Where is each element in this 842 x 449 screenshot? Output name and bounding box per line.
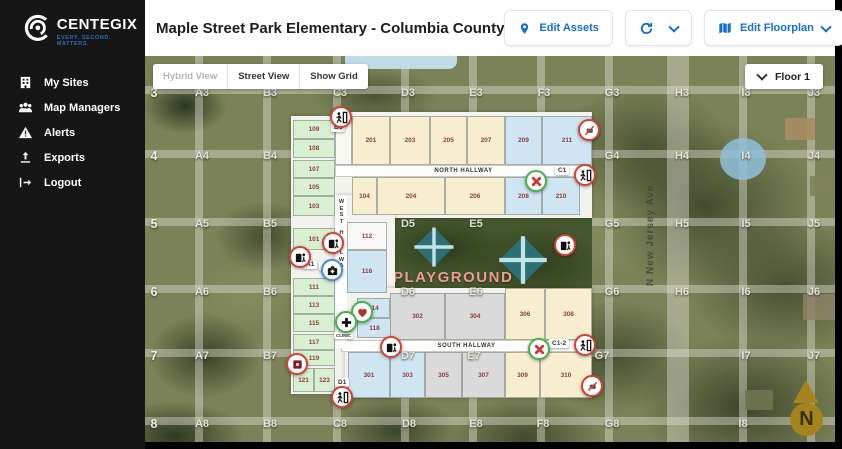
fire-alarm-icon <box>291 358 304 371</box>
room-number: 302 <box>412 313 423 320</box>
no-access-marker[interactable] <box>581 375 603 397</box>
room-number: 117 <box>309 339 320 346</box>
sidebar-item-label: Exports <box>44 152 85 164</box>
exit-run-icon <box>335 111 348 124</box>
room-301[interactable]: 301 <box>348 352 390 398</box>
room-number: 108 <box>309 145 320 152</box>
sidebar-item-alerts[interactable]: Alerts <box>16 120 139 145</box>
room-number: 206 <box>470 193 481 200</box>
chevron-down-icon <box>756 69 767 80</box>
west-hallway-letter: E <box>340 206 344 213</box>
room-210[interactable]: 210 <box>542 177 580 215</box>
centegix-spiral-icon <box>22 12 54 44</box>
show-grid-button[interactable]: Show Grid <box>299 64 368 89</box>
room-number: 115 <box>309 320 320 327</box>
room-105[interactable]: 105 <box>293 178 335 196</box>
room-number: 107 <box>309 166 320 173</box>
edit-assets-label: Edit Assets <box>539 22 599 34</box>
room-number: 104 <box>359 193 370 200</box>
logo-title: CENTEGIX <box>57 16 145 33</box>
west-hallway-letter: S <box>340 212 344 219</box>
room-number: 305 <box>438 372 449 379</box>
no-access-icon <box>586 380 599 393</box>
room-209[interactable]: 209 <box>505 116 542 165</box>
room-number: 301 <box>364 372 375 379</box>
label-chip-C1: C1 <box>555 166 569 175</box>
sidebar-item-logout[interactable]: Logout <box>16 170 139 195</box>
floor-select-dropdown[interactable]: Floor 1 <box>745 64 823 89</box>
topbar: Maple Street Park Elementary - Columbia … <box>145 0 835 56</box>
house-roof <box>810 176 835 196</box>
page-title: Maple Street Park Elementary - Columbia … <box>156 20 504 37</box>
exit-run-marker[interactable] <box>330 106 352 128</box>
room-115[interactable]: 115 <box>293 314 335 332</box>
room-number: 109 <box>309 126 320 133</box>
north-hallway-label: NORTH HALLWAY <box>434 168 492 174</box>
sidebar-item-map-managers[interactable]: Map Managers <box>16 95 139 120</box>
compass-north-label: N <box>799 408 813 431</box>
x-mark-marker[interactable] <box>528 338 550 360</box>
room-number: 112 <box>362 233 373 240</box>
house-roof <box>803 294 835 320</box>
room-109[interactable]: 109 <box>293 120 335 139</box>
room-112[interactable]: 112 <box>347 222 387 250</box>
room-number: 118 <box>369 325 380 332</box>
room-number: 113 <box>309 302 320 309</box>
clinic-chip: CLINIC <box>334 332 353 339</box>
sidebar: CENTEGIX EVERY. SECOND. MATTERS. My Site… <box>0 0 145 449</box>
street-road <box>667 56 689 442</box>
alert-device-icon <box>385 341 398 354</box>
street-road <box>145 417 835 425</box>
room-203[interactable]: 203 <box>390 116 430 165</box>
room-number: 309 <box>517 372 528 379</box>
label-chip-C1-2: C1-2 <box>549 339 569 348</box>
chevron-down-icon <box>668 21 679 32</box>
clinic-icon <box>340 316 353 329</box>
room-204[interactable]: 204 <box>377 177 445 215</box>
room-number: 203 <box>405 137 416 144</box>
app-window: CENTEGIX EVERY. SECOND. MATTERS. My Site… <box>0 0 842 449</box>
sidebar-item-label: Alerts <box>44 127 75 139</box>
room-305[interactable]: 305 <box>425 352 462 398</box>
map-canvas[interactable]: PLAYGROUND N New Jersey Ave NORTH HALLWA… <box>145 56 835 442</box>
alert-device-icon <box>294 251 307 264</box>
room-117[interactable]: 117 <box>293 334 335 350</box>
topbar-buttons: Edit Assets Edit Floorplan Back <box>504 10 842 46</box>
people-icon <box>18 100 33 115</box>
room-number: 307 <box>478 372 489 379</box>
room-306[interactable]: 306 <box>505 288 545 340</box>
room-number: 207 <box>481 137 492 144</box>
street-road <box>263 56 271 442</box>
fire-alarm-marker[interactable] <box>286 353 308 375</box>
room-number: 111 <box>309 284 319 291</box>
room-308[interactable]: 308 <box>545 288 592 340</box>
room-103[interactable]: 103 <box>293 196 335 216</box>
room-207[interactable]: 207 <box>467 116 505 165</box>
heart-icon <box>356 306 369 319</box>
room-number: 101 <box>309 236 320 243</box>
alert-device-icon <box>559 239 572 252</box>
x-mark-icon <box>533 343 546 356</box>
street-road <box>605 56 613 442</box>
exit-run-icon <box>579 339 592 352</box>
room-number: 105 <box>309 184 320 191</box>
room-302[interactable]: 302 <box>390 293 445 340</box>
edit-assets-button[interactable]: Edit Assets <box>504 10 613 46</box>
clinic-marker[interactable] <box>335 311 357 333</box>
first-aid-icon <box>326 264 339 277</box>
edit-floorplan-button[interactable]: Edit Floorplan <box>704 10 842 46</box>
room-number: 306 <box>520 311 531 318</box>
west-hallway-letter: T <box>340 219 343 226</box>
room-304[interactable]: 304 <box>445 293 505 340</box>
room-206[interactable]: 206 <box>445 177 505 215</box>
house-roof <box>745 390 773 410</box>
room-number: 116 <box>362 268 373 275</box>
sidebar-item-label: Logout <box>44 177 81 189</box>
street-name-label: N New Jersey Ave <box>645 101 656 286</box>
room-number: 103 <box>309 203 320 210</box>
street-road <box>739 56 747 442</box>
room-number: 208 <box>518 193 529 200</box>
west-hallway-letter: W <box>339 199 344 206</box>
centegix-logo: CENTEGIX EVERY. SECOND. MATTERS. <box>22 12 145 47</box>
alert-device-marker[interactable] <box>380 336 402 358</box>
room-number: 211 <box>562 137 573 144</box>
chevron-down-icon <box>820 21 831 32</box>
street-road <box>195 56 203 442</box>
map-pin-icon <box>518 22 531 35</box>
room-number: 201 <box>366 137 377 144</box>
floor-label: Floor 1 <box>775 71 810 83</box>
room-113[interactable]: 113 <box>293 296 335 314</box>
logout-icon <box>18 175 33 190</box>
room-number: 121 <box>298 377 309 384</box>
sidebar-item-my-sites[interactable]: My Sites <box>16 70 139 95</box>
exit-run-icon <box>579 169 592 182</box>
playground-structure <box>411 224 457 270</box>
sidebar-nav: My SitesMap ManagersAlertsExportsLogout <box>16 70 139 195</box>
building-icon <box>18 75 33 90</box>
house-roof <box>785 118 815 140</box>
x-mark-icon <box>530 175 543 188</box>
room-number: 205 <box>443 137 454 144</box>
sidebar-item-exports[interactable]: Exports <box>16 145 139 170</box>
north-hallway: NORTH HALLWAY <box>335 165 592 177</box>
refresh-button[interactable] <box>625 10 692 46</box>
exit-run-marker[interactable] <box>574 334 596 356</box>
no-access-marker[interactable] <box>578 119 600 141</box>
floorplan-map-icon <box>718 21 732 35</box>
room-104[interactable]: 104 <box>352 177 377 215</box>
room-107[interactable]: 107 <box>293 160 335 178</box>
room-number: 123 <box>319 377 330 384</box>
exit-run-icon <box>336 391 349 404</box>
upload-icon <box>18 150 33 165</box>
x-mark-marker[interactable] <box>525 170 547 192</box>
room-number: 204 <box>406 193 417 200</box>
refresh-icon <box>639 21 654 36</box>
map-view-toggle: Hybrid View Street View Show Grid <box>153 64 368 89</box>
playground-structure <box>495 232 551 288</box>
sidebar-item-label: My Sites <box>44 77 89 89</box>
room-number: 119 <box>309 355 320 362</box>
room-number: 308 <box>563 311 574 318</box>
sidebar-item-label: Map Managers <box>44 102 120 114</box>
no-access-icon <box>583 124 596 137</box>
logo-tagline: EVERY. SECOND. MATTERS. <box>57 35 145 47</box>
compass-north-icon: N <box>790 403 823 436</box>
alert-device-marker[interactable] <box>322 232 344 254</box>
pond <box>720 138 766 180</box>
warning-icon <box>18 125 33 140</box>
room-123[interactable]: 123 <box>314 368 335 392</box>
south-hallway-label: SOUTH HALLWAY <box>438 343 496 349</box>
room-116[interactable]: 116 <box>347 250 387 293</box>
exit-run-marker[interactable] <box>331 386 353 408</box>
alert-device-marker[interactable] <box>289 246 311 268</box>
room-number: 210 <box>556 193 567 200</box>
compass-north-arrow-icon <box>793 380 819 403</box>
room-307[interactable]: 307 <box>462 352 505 398</box>
room-205[interactable]: 205 <box>430 116 467 165</box>
alert-device-marker[interactable] <box>554 234 576 256</box>
room-108[interactable]: 108 <box>293 139 335 158</box>
room-201[interactable]: 201 <box>352 116 390 165</box>
hybrid-view-button[interactable]: Hybrid View <box>153 64 227 89</box>
room-number: 303 <box>402 372 413 379</box>
street-view-button[interactable]: Street View <box>227 64 299 89</box>
exit-run-marker[interactable] <box>574 164 596 186</box>
alert-device-icon <box>327 237 340 250</box>
room-number: 209 <box>518 137 529 144</box>
first-aid-marker[interactable] <box>321 259 343 281</box>
room-number: 310 <box>561 372 572 379</box>
edit-floorplan-label: Edit Floorplan <box>740 22 814 34</box>
room-303[interactable]: 303 <box>390 352 425 398</box>
room-number: 304 <box>470 313 481 320</box>
